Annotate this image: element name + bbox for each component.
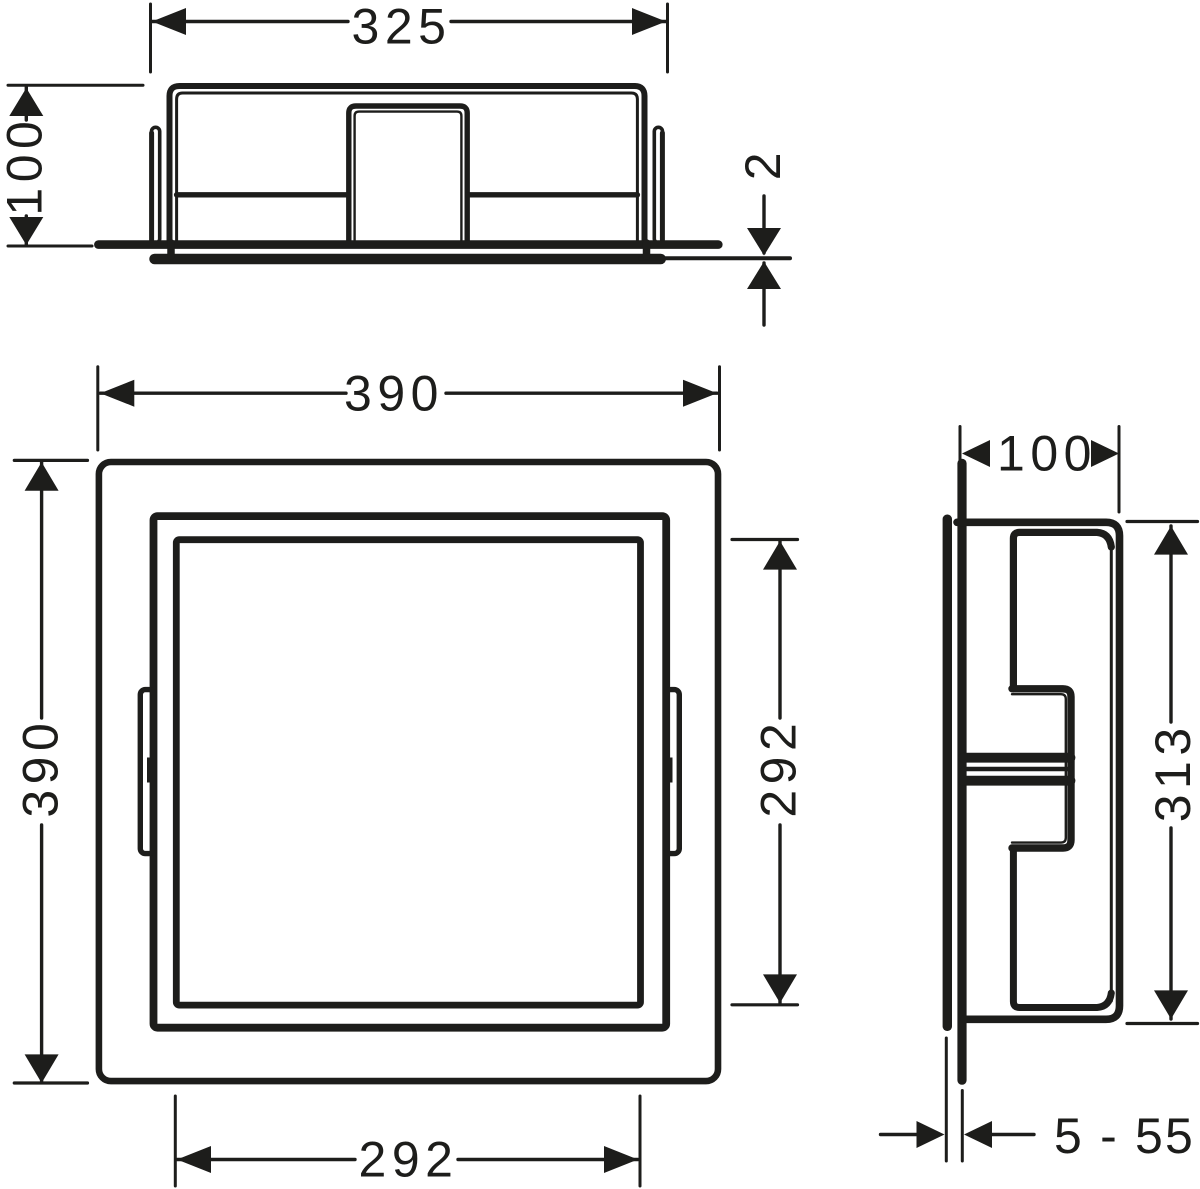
- svg-text:100: 100: [997, 426, 1097, 482]
- svg-text:292: 292: [359, 1132, 459, 1188]
- svg-text:100: 100: [0, 116, 53, 216]
- svg-text:2: 2: [735, 152, 791, 180]
- svg-text:390: 390: [344, 365, 444, 421]
- svg-text:5 - 55: 5 - 55: [1054, 1108, 1195, 1164]
- svg-text:292: 292: [751, 718, 807, 818]
- svg-text:390: 390: [13, 718, 69, 818]
- svg-text:313: 313: [1145, 722, 1200, 822]
- svg-text:325: 325: [352, 0, 452, 55]
